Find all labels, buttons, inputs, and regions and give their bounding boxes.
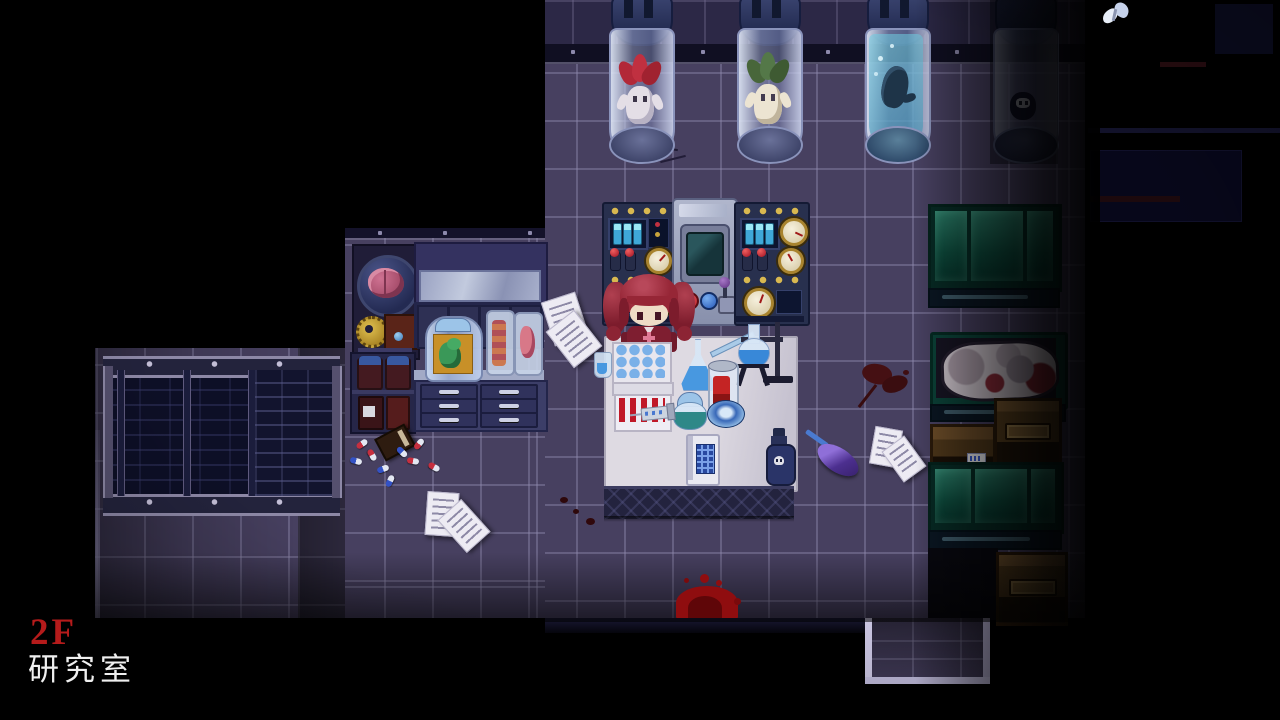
blood-spot — [700, 574, 709, 583]
blood-spot — [716, 580, 722, 586]
room-label: 研究室 — [28, 654, 136, 685]
game-viewport: 2F 研究室 — [0, 0, 1280, 720]
floor-label: 2F — [30, 614, 77, 651]
white-butterfly[interactable] — [1102, 2, 1136, 28]
blood-splatter — [664, 570, 754, 618]
vignette-overlay — [0, 0, 1280, 720]
blood-core — [688, 596, 722, 618]
blood-spot — [734, 598, 741, 605]
blood-spot — [684, 578, 689, 583]
